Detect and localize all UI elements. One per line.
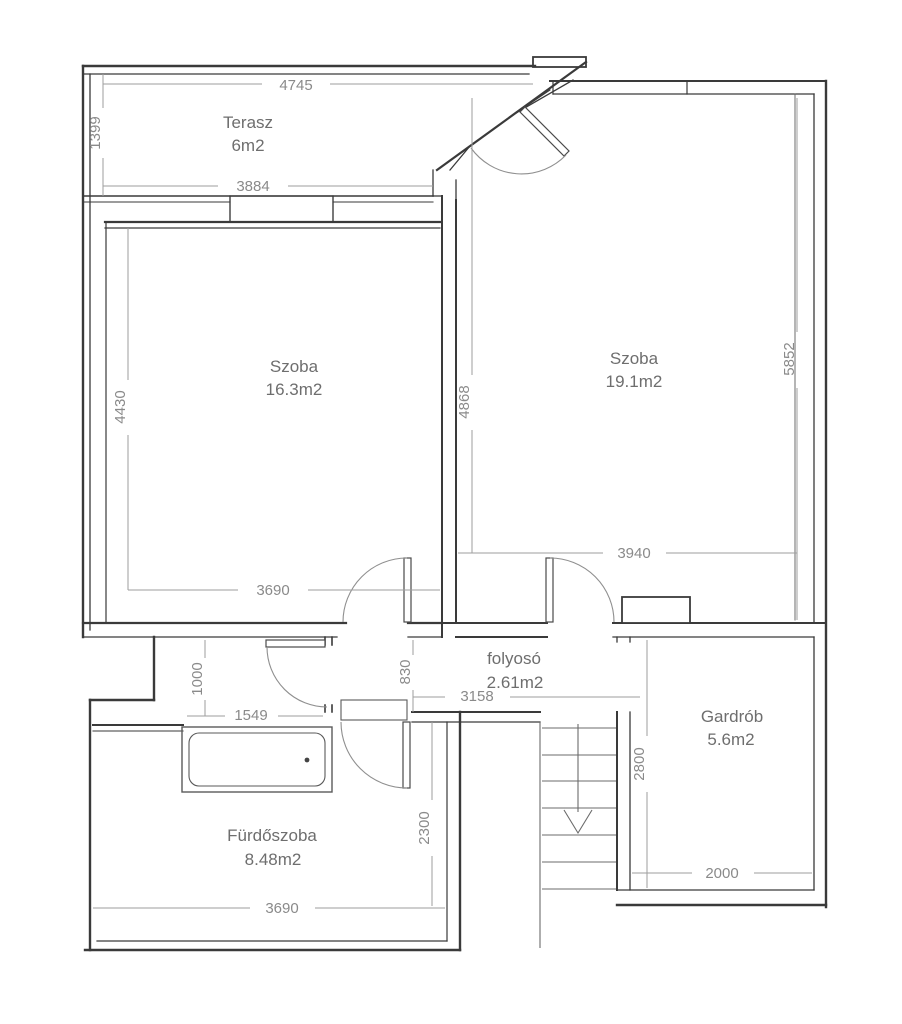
dimension-label: 4868 [456, 385, 473, 418]
room-label-szoba-2: Szoba [610, 349, 659, 368]
dimension-label: 3940 [617, 545, 650, 562]
dimension-label: 3690 [256, 582, 289, 599]
room-label-furdoszoba: Fürdőszoba [227, 826, 317, 845]
room-area-terasz: 6m2 [231, 136, 264, 155]
stairs-direction-arrow [564, 810, 592, 833]
walls [83, 57, 826, 950]
dimension-label: 1000 [189, 662, 206, 695]
dimension-label: 3884 [236, 178, 269, 195]
bathroom-vestibule-door [266, 640, 327, 707]
dimension-label: 830 [397, 659, 414, 684]
room-label-terasz: Terasz [223, 113, 273, 132]
doors [266, 107, 614, 788]
dimension-lines [93, 74, 812, 908]
room-label-folyoso: folyosó [487, 649, 541, 668]
staircase [540, 722, 616, 948]
room-area-szoba-2: 19.1m2 [606, 372, 663, 391]
floor-plan-svg: 4745 1399 3884 4430 3690 4868 5852 3940 … [0, 0, 902, 1024]
room-label-szoba-1: Szoba [270, 357, 319, 376]
dimension-label: 1549 [234, 707, 267, 724]
chimney-block [622, 597, 690, 623]
bathroom-door [341, 722, 410, 788]
dimension-label: 4430 [112, 390, 129, 423]
dimension-label: 2300 [416, 811, 433, 844]
room-area-szoba-1: 16.3m2 [266, 380, 323, 399]
room-area-gardrob: 5.6m2 [707, 730, 754, 749]
right-room-door [546, 558, 614, 622]
room-area-furdoszoba: 8.48m2 [245, 850, 302, 869]
dimension-label: 4745 [279, 77, 312, 94]
dimension-label: 1399 [87, 116, 104, 149]
bathtub [182, 727, 332, 792]
dimension-label: 3690 [265, 900, 298, 917]
floor-plan-page: 4745 1399 3884 4430 3690 4868 5852 3940 … [0, 0, 902, 1024]
room-labels: Terasz 6m2 Szoba 16.3m2 Szoba 19.1m2 fol… [223, 113, 763, 869]
room-area-folyoso: 2.61m2 [487, 673, 544, 692]
dimension-label: 2000 [705, 865, 738, 882]
entry-door [471, 107, 569, 174]
room-label-gardrob: Gardrób [701, 707, 763, 726]
bathtub-drain [305, 758, 310, 763]
dimension-label: 5852 [781, 342, 798, 375]
dimension-label: 2800 [631, 747, 648, 780]
